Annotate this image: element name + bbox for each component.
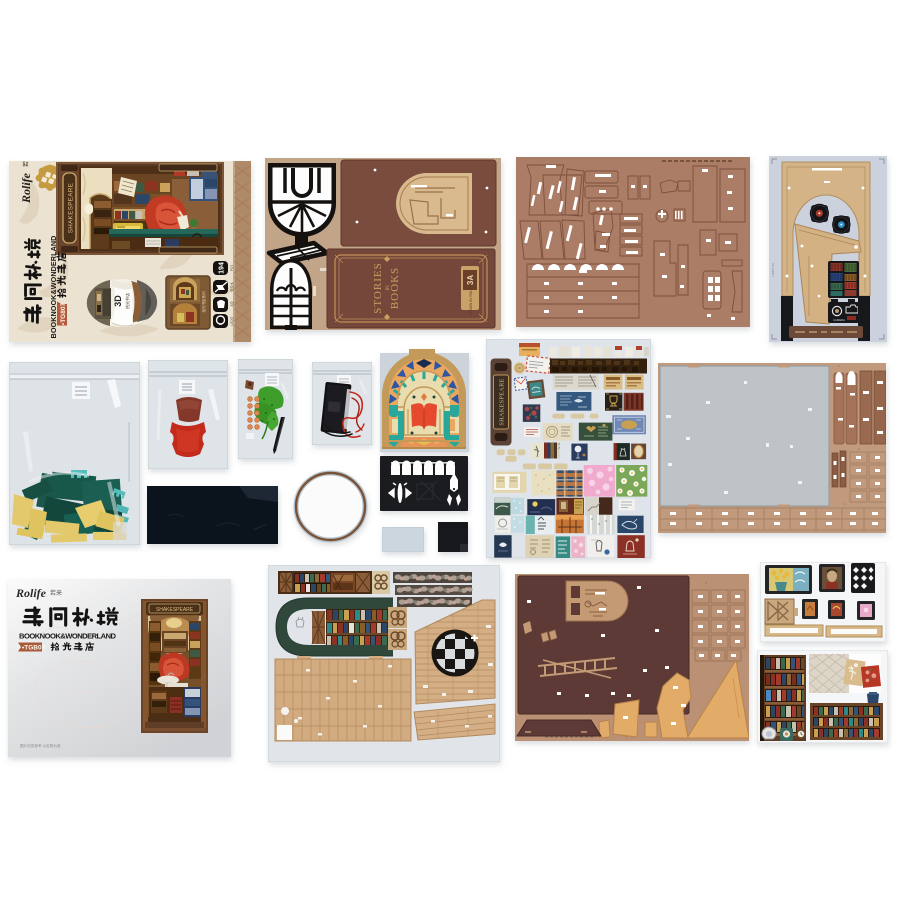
- svg-text:DESIGN BY ROLIFE: DESIGN BY ROLIFE: [469, 285, 473, 315]
- svg-text:CAMERA: CAMERA: [833, 318, 845, 322]
- svg-text:3D: 3D: [113, 295, 123, 307]
- svg-text:TGB07-06: TGB07-06: [771, 263, 775, 277]
- svg-text:•TGB07: •TGB07: [22, 645, 46, 652]
- svg-text:A胶: A胶: [229, 301, 234, 307]
- svg-text:BOOKNOOK&WONDERLAND: BOOKNOOK&WONDERLAND: [19, 632, 117, 641]
- svg-text:LED灯: LED灯: [229, 315, 234, 325]
- svg-text:若来: 若来: [50, 589, 62, 597]
- svg-text:BOOKNOOK&WONDERLAND: BOOKNOOK&WONDERLAND: [49, 236, 58, 339]
- svg-text:STORIES: STORIES: [372, 262, 384, 313]
- svg-text:194: 194: [219, 262, 226, 274]
- svg-text:PCS: PCS: [230, 265, 234, 272]
- svg-text:3A: 3A: [466, 275, 475, 285]
- svg-text:Rolife: Rolife: [15, 586, 47, 600]
- svg-text:SHAKESPEARE: SHAKESPEARE: [499, 378, 506, 425]
- svg-text:拾光书店系列: 拾光书店系列: [201, 291, 206, 312]
- svg-text:拾光书店: 拾光书店: [124, 293, 130, 309]
- svg-text:免胶水: 免胶水: [229, 281, 234, 291]
- svg-text:若来: 若来: [22, 161, 30, 167]
- svg-text:BOOKS: BOOKS: [389, 267, 401, 309]
- svg-text:Rolife: Rolife: [19, 172, 33, 204]
- svg-text:图片仅供参考 以实物为准: 图片仅供参考 以实物为准: [20, 743, 61, 748]
- svg-text:•TG807: •TG807: [60, 303, 67, 326]
- svg-text:SHAKESPEARE: SHAKESPEARE: [68, 183, 75, 233]
- svg-text:SHAKESPEARE: SHAKESPEARE: [156, 607, 194, 613]
